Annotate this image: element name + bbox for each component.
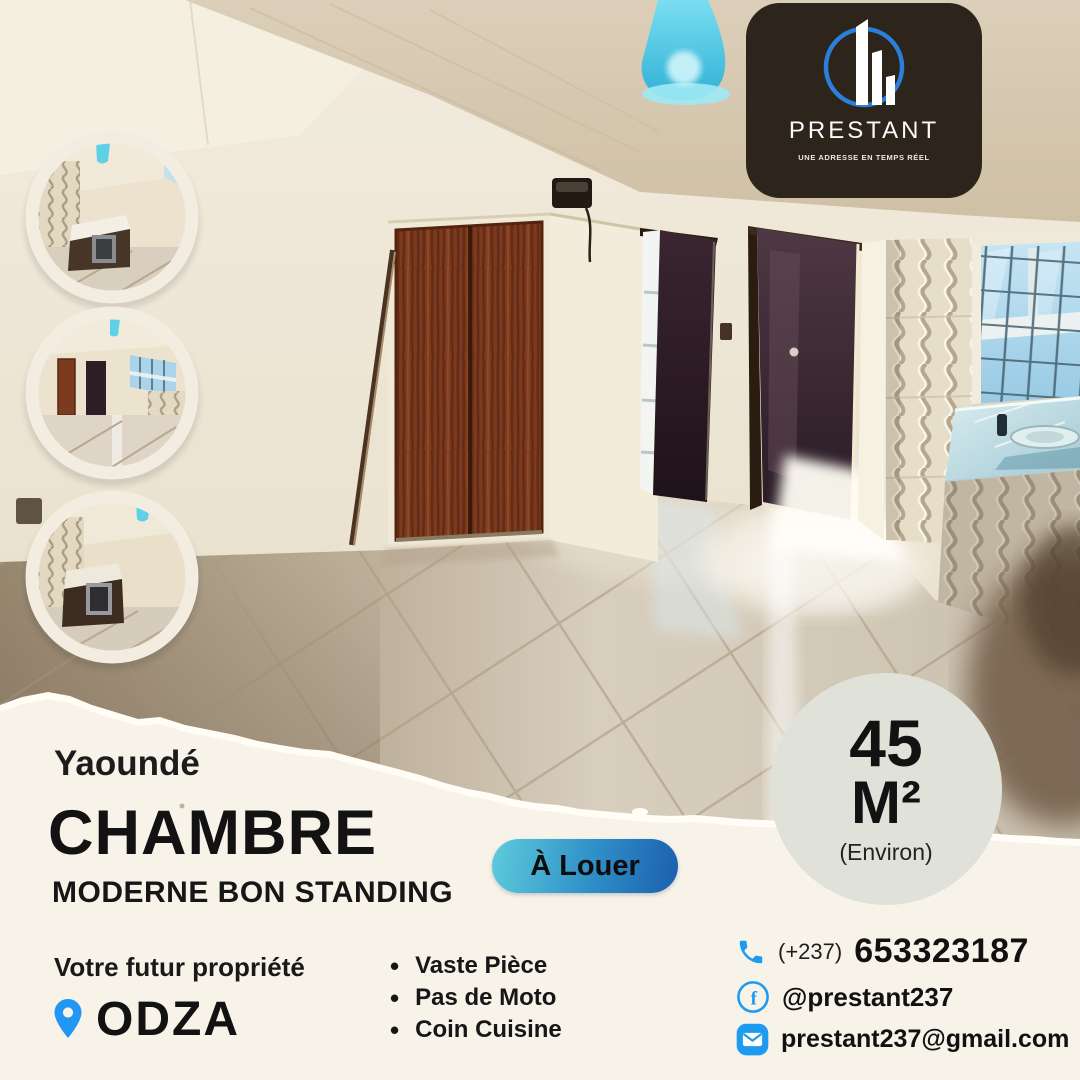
listing-title: CHAMBRE — [48, 802, 377, 865]
thumbnail-1 — [24, 136, 200, 310]
area-badge: 45 M² (Environ) — [770, 673, 1002, 905]
phone-row[interactable]: (+237) 653323187 — [736, 932, 1069, 971]
city-label: Yaoundé — [54, 744, 200, 784]
phone-icon — [736, 937, 766, 967]
feature-item: • Vaste Pièce — [390, 950, 562, 982]
email-row[interactable]: prestant237@gmail.com — [736, 1023, 1069, 1056]
bullet-icon: • — [390, 1014, 399, 1046]
location-row: ODZA — [50, 992, 240, 1047]
contact-block: (+237) 653323187 f @prestant237 prestant… — [736, 932, 1069, 1056]
feature-item: • Pas de Moto — [390, 982, 562, 1014]
email-icon — [736, 1023, 769, 1056]
listing-subtitle: MODERNE BON STANDING — [52, 876, 453, 910]
feature-label: Vaste Pièce — [415, 950, 547, 982]
real-estate-flyer: PRESTANT UNE ADRESSE EN TEMPS RÉEL Yaoun… — [0, 0, 1080, 1080]
thumbnail-2 — [24, 312, 200, 486]
phone-number: 653323187 — [854, 932, 1029, 971]
svg-text:f: f — [751, 988, 758, 1009]
phone-prefix: (+237) — [778, 939, 842, 965]
neighborhood-name: ODZA — [96, 992, 240, 1047]
facebook-icon: f — [736, 980, 770, 1014]
brand-logo-mark — [746, 9, 982, 121]
feature-list: • Vaste Pièce • Pas de Moto • Coin Cuisi… — [390, 950, 562, 1046]
wall-socket — [16, 498, 42, 524]
location-pin-icon — [50, 996, 86, 1044]
facebook-handle: @prestant237 — [782, 982, 953, 1013]
facebook-row[interactable]: f @prestant237 — [736, 980, 1069, 1014]
feature-label: Coin Cuisine — [415, 1014, 562, 1046]
area-value: 45 — [849, 712, 922, 775]
brand-tagline: UNE ADRESSE EN TEMPS RÉEL — [746, 153, 982, 162]
feature-item: • Coin Cuisine — [390, 1014, 562, 1046]
feature-label: Pas de Moto — [415, 982, 556, 1014]
brand-logo-panel: PRESTANT UNE ADRESSE EN TEMPS RÉEL — [746, 3, 982, 198]
brand-name: PRESTANT — [746, 117, 982, 145]
bullet-icon: • — [390, 950, 399, 982]
status-badge[interactable]: À Louer — [492, 839, 678, 893]
email-address: prestant237@gmail.com — [781, 1025, 1069, 1054]
thumbnail-3 — [24, 496, 200, 670]
bullet-icon: • — [390, 982, 399, 1014]
future-property-label: Votre futur propriété — [54, 952, 305, 983]
area-unit: M² — [851, 774, 921, 831]
status-badge-label: À Louer — [530, 850, 640, 883]
area-note: (Environ) — [839, 839, 932, 866]
closet — [352, 178, 658, 566]
